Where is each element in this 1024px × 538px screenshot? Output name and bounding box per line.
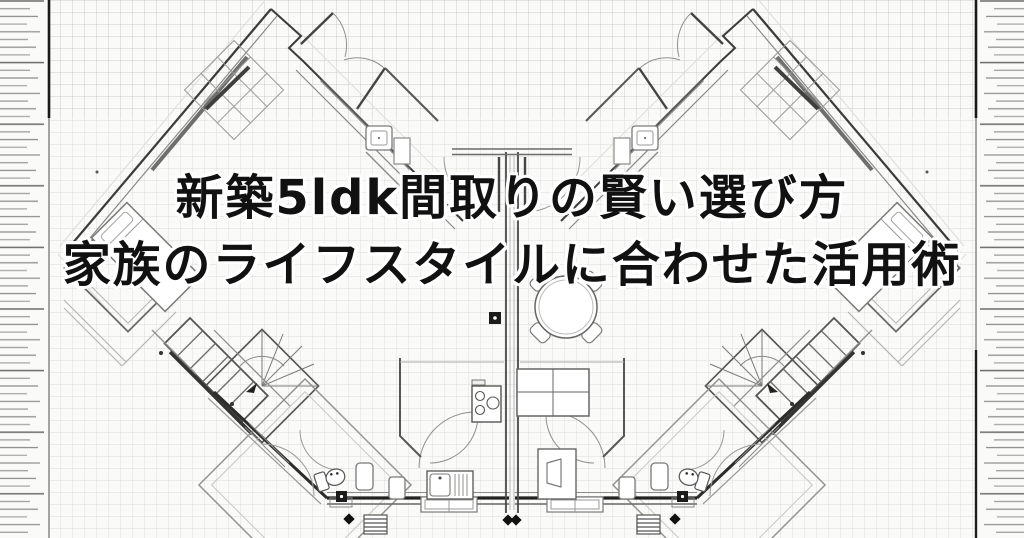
stove-icon — [472, 380, 501, 422]
floor-plan-background — [0, 0, 1024, 538]
blog-header-image: 新築5ldk間取りの賢い選び方 家族のライフスタイルに合わせた活用術 — [0, 0, 1024, 538]
left-ruler-ticks — [0, 0, 46, 538]
dining-table-icon — [529, 270, 604, 345]
kitchen-sink-icon — [427, 471, 473, 499]
right-ruler-ticks — [978, 0, 1024, 538]
column-marker — [489, 312, 501, 324]
desk-chair-icon — [538, 449, 576, 499]
grid-table-icon — [517, 369, 589, 416]
